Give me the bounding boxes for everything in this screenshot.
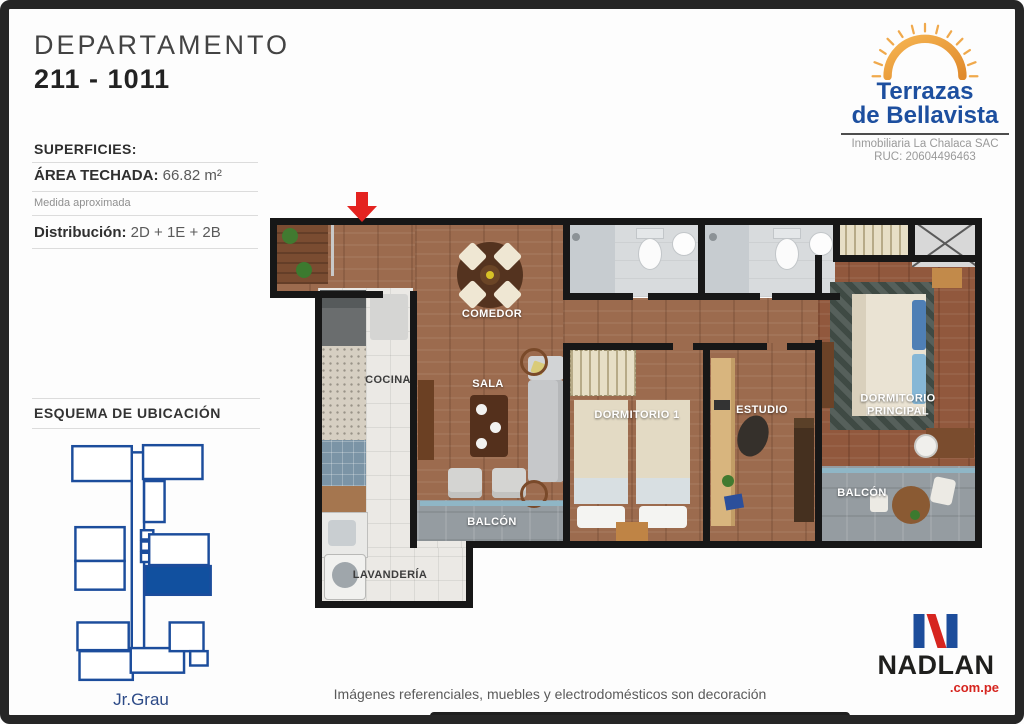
wall-segment (410, 291, 417, 548)
sink-basin (328, 520, 356, 546)
distribution-value: 2D + 1E + 2B (131, 224, 221, 241)
divider (32, 248, 258, 249)
flower-centerpiece (486, 271, 494, 279)
table-decor (490, 422, 501, 433)
balcony-glass-door (822, 468, 975, 473)
room-cocina (413, 541, 468, 548)
plant (910, 510, 920, 520)
highlighted-unit (145, 566, 211, 595)
wall-segment (270, 218, 277, 298)
developer-company: Inmobiliaria La Chalaca SAC (833, 138, 1017, 151)
wall-segment (787, 343, 822, 350)
kitchen-counter (320, 346, 366, 440)
stove (320, 290, 366, 346)
plant (722, 475, 734, 487)
nightstand (616, 522, 648, 542)
nadlan-monogram-icon (913, 614, 959, 648)
floor-plan: COMEDOR COCINA SALA DORMITORIO 1 ESTUDIO… (270, 190, 984, 614)
closet (570, 350, 636, 396)
entrance-arrow-icon (356, 192, 368, 207)
divider (32, 398, 260, 399)
room-label-sala: SALA (472, 378, 504, 390)
room-label-estudio: ESTUDIO (736, 404, 788, 416)
unit-number: 211 - 1011 (34, 64, 170, 95)
wall-segment (270, 291, 383, 298)
brand-name-line1: Terrazas (833, 80, 1017, 104)
fridge (370, 294, 408, 340)
room-label-balcon-izq: BALCÓN (467, 516, 516, 528)
wall-segment (975, 218, 982, 548)
tv-console (418, 380, 434, 460)
developer-logo: Terrazas de Bellavista Inmobiliaria La C… (833, 22, 1017, 164)
street-label: Jr.Grau (55, 690, 227, 710)
table-decor (476, 404, 487, 415)
area-label: ÁREA TECHADA: (34, 167, 158, 184)
kitchen-tiles (320, 440, 366, 486)
toilet (638, 238, 662, 270)
wall-segment (563, 293, 633, 300)
developer-ruc: RUC: 20604496463 (833, 151, 1017, 164)
sink (809, 232, 833, 256)
chair (914, 434, 938, 458)
room-label-lavanderia: LAVANDERÍA (353, 569, 427, 581)
coat-rack (331, 224, 334, 276)
wall-segment (315, 601, 473, 608)
bookshelf (794, 418, 814, 522)
sun-icon (860, 22, 990, 80)
divider (32, 428, 260, 429)
room-label-cocina: COCINA (365, 374, 411, 386)
distribution-label: Distribución: (34, 224, 127, 241)
wall-segment (698, 222, 705, 300)
shower-head (709, 233, 717, 241)
bed-pillow (912, 300, 926, 350)
sofa (528, 380, 564, 482)
wall-segment (908, 222, 915, 262)
coffee-table (470, 395, 508, 457)
agency-domain: .com.pe (873, 681, 999, 694)
wall-segment (563, 222, 570, 300)
divider (841, 133, 1009, 135)
wall-segment (772, 293, 840, 300)
plant (296, 262, 312, 278)
sink (672, 232, 696, 256)
room-label-dormitorio-principal: DORMITORIO PRINCIPAL (848, 392, 948, 417)
wall-segment (703, 350, 710, 548)
room-label-dormitorio-1: DORMITORIO 1 (594, 409, 679, 421)
wall-segment (815, 255, 822, 300)
table-decor (476, 438, 487, 449)
wall-segment (315, 291, 322, 608)
room-label-balcon-der: BALCÓN (837, 487, 886, 499)
brand-name-line2: de Bellavista (833, 104, 1017, 128)
monitor (714, 400, 730, 410)
agency-name: NADLAN (862, 652, 1010, 679)
ceiling-lamp (520, 348, 548, 376)
dresser (822, 342, 834, 408)
plant (282, 228, 298, 244)
wall-segment (648, 293, 760, 300)
building-outline-map (55, 438, 227, 686)
room-hallway (563, 298, 822, 348)
armchair (448, 468, 482, 498)
wall-segment (466, 541, 473, 608)
disclaimer-text: Imágenes referenciales, muebles y electr… (270, 686, 830, 702)
room-label-comedor: COMEDOR (462, 308, 522, 320)
balcony-glass-door (420, 501, 563, 506)
page-title: DEPARTAMENTO (34, 30, 290, 61)
wall-segment (563, 343, 673, 350)
approx-note: Medida aproximada (34, 197, 131, 209)
divider (32, 162, 258, 163)
entrance-arrow-icon (347, 206, 377, 222)
agency-logo: NADLAN .com.pe (862, 614, 1010, 694)
divider (32, 215, 258, 216)
superficies-heading: SUPERFICIES: (34, 141, 137, 157)
wall-segment (815, 340, 822, 548)
area-value: 66.82 m² (163, 167, 222, 184)
frame-notch (430, 712, 850, 724)
wall-segment (468, 541, 982, 548)
closet (836, 220, 910, 260)
location-scheme-title: ESQUEMA DE UBICACIÓN (34, 405, 221, 421)
kitchen-counter-wood (320, 486, 366, 512)
wall-segment (563, 343, 570, 548)
nightstand (932, 268, 962, 288)
wall-segment (703, 343, 767, 350)
toilet (775, 238, 799, 270)
divider (32, 191, 258, 192)
shower-head (572, 233, 580, 241)
